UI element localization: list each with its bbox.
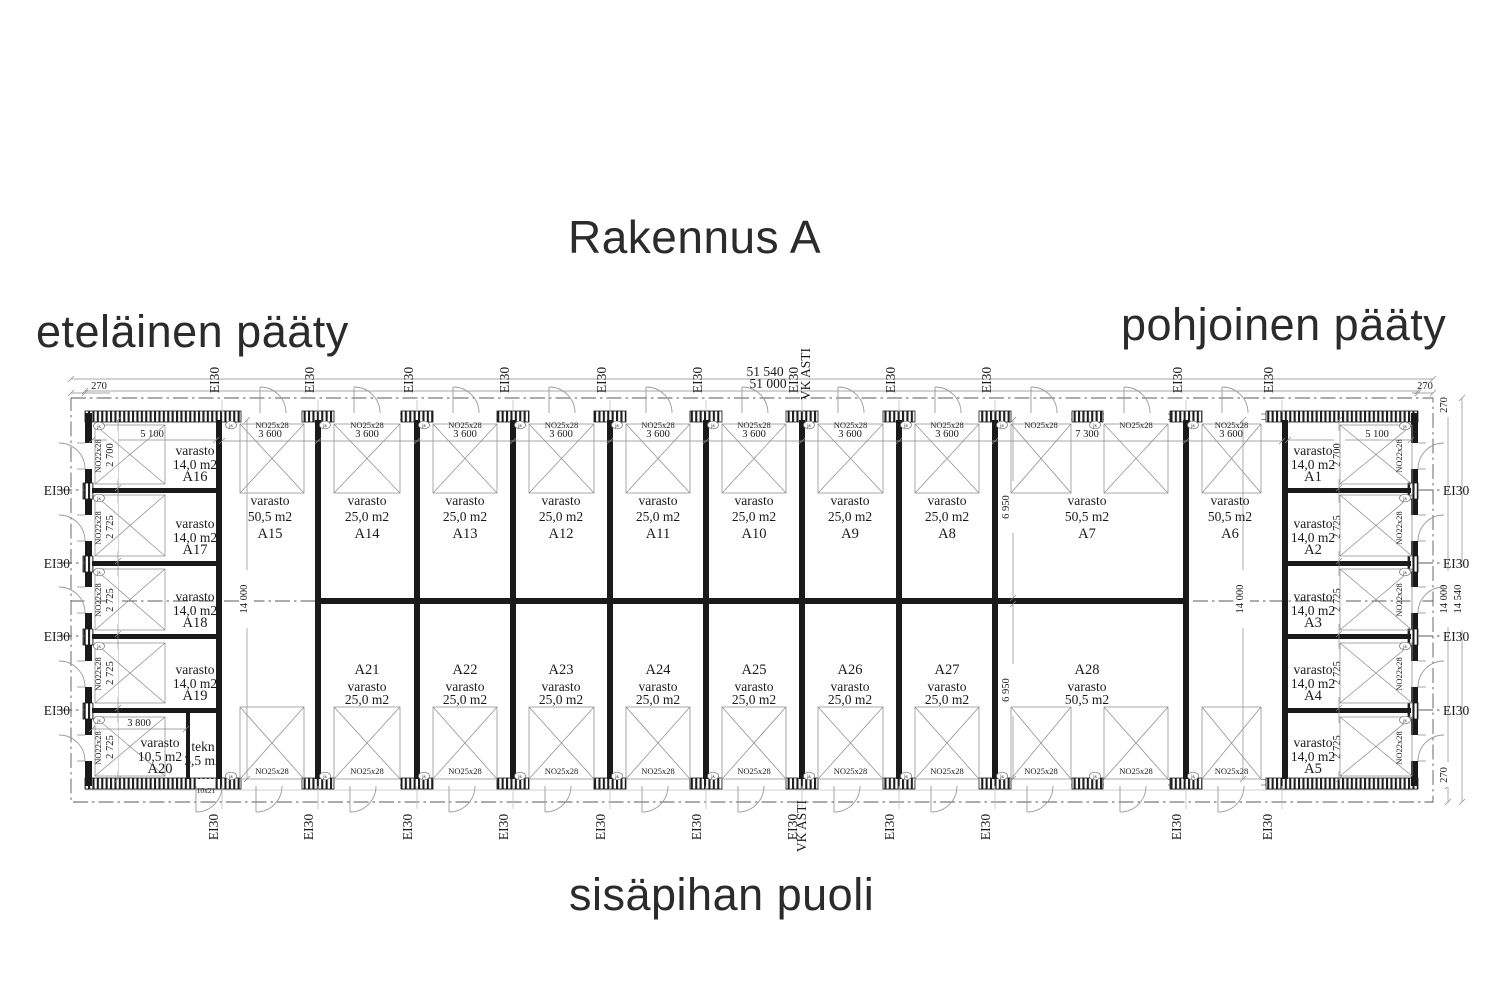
fire-rating-label: EI30 xyxy=(1443,556,1469,571)
unit-room-word: varasto xyxy=(251,493,290,508)
fire-rating-label: EI30 xyxy=(1443,483,1469,498)
fire-rating-label: EI30 xyxy=(207,367,222,393)
door-jamb-mark-label: js xyxy=(614,423,619,429)
door-type-label: 10x21 xyxy=(197,786,216,795)
door-jamb-mark-label: js xyxy=(96,718,101,724)
door-type-label: NO25x28 xyxy=(448,766,482,776)
door-jamb-mark-label: js xyxy=(1190,423,1195,429)
door-opening xyxy=(85,587,93,613)
door-opening xyxy=(722,779,786,788)
dim-label-depth: 2 700 xyxy=(105,443,116,467)
door-type-label: NO25x28 xyxy=(1215,420,1249,430)
unit-id: A7 xyxy=(1078,526,1096,542)
exterior-wall-hatched xyxy=(1282,778,1418,789)
unit-id: A24 xyxy=(646,662,672,678)
fire-rating-label: EI30 xyxy=(401,367,416,393)
fire-rating-label: EI30 xyxy=(302,367,317,393)
unit-id: A15 xyxy=(258,526,283,542)
unit-room-word: varasto xyxy=(1068,493,1107,508)
unit-id: A14 xyxy=(355,526,381,542)
vk-asti-label: VK ASTI xyxy=(798,347,813,400)
unit-area: 50,5 m2 xyxy=(248,509,292,524)
unit-room-word: varasto xyxy=(446,493,485,508)
dim-label-col-height: 14 000 xyxy=(1235,585,1246,614)
dim-label-a20-width: 3 800 xyxy=(127,718,151,729)
unit-id: A12 xyxy=(549,526,574,542)
door-type-label: NO25x28 xyxy=(641,766,675,776)
unit-room-word: varasto xyxy=(1294,443,1333,458)
unit-id: A13 xyxy=(453,526,478,542)
unit-room-word: varasto xyxy=(176,589,215,604)
dim-label-outer-height: 14 540 xyxy=(1453,585,1464,614)
door-opening xyxy=(433,779,497,788)
door-opening xyxy=(85,443,93,469)
door-jamb-mark-label: js xyxy=(710,423,715,429)
unit-area: 25,0 m2 xyxy=(345,509,389,524)
unit-id: A22 xyxy=(453,662,478,678)
door-opening xyxy=(529,779,594,788)
exterior-wall-hatched xyxy=(85,778,241,789)
door-type-label: NO22x28 xyxy=(1394,583,1404,617)
door-jamb-mark-label: js xyxy=(1402,570,1407,576)
door-jamb-mark-label: js xyxy=(806,423,811,429)
door-swing-arc xyxy=(59,587,85,613)
dim-label-offset: 270 xyxy=(91,381,107,392)
party-wall xyxy=(1288,634,1411,639)
door-type-label: NO25x28 xyxy=(1119,420,1153,430)
unit-id: A9 xyxy=(841,526,859,542)
door-type-label: NO25x28 xyxy=(255,420,289,430)
dim-label-offset: 270 xyxy=(1439,767,1450,783)
door-jamb-mark-label: js xyxy=(903,774,908,780)
party-wall xyxy=(1288,708,1411,713)
party-wall xyxy=(1288,561,1411,566)
unit-room-word: varasto xyxy=(831,493,870,508)
door-jamb-mark-label: js xyxy=(1402,496,1407,502)
door-type-label: NO22x28 xyxy=(93,657,103,691)
door-type-label: NO22x28 xyxy=(1394,731,1404,765)
door-type-label: NO25x28 xyxy=(834,766,868,776)
door-type-label: NO25x28 xyxy=(448,420,482,430)
door-swing-arc xyxy=(1418,443,1444,469)
unit-room-word: varasto xyxy=(542,493,581,508)
floor-plan-drawing: 51 54051 0002702703 6003 6003 6003 6003 … xyxy=(0,0,1500,1000)
dim-label-depth: 2 725 xyxy=(105,661,116,685)
unit-room-word: varasto xyxy=(176,516,215,531)
dim-label-depth: 2 725 xyxy=(105,515,116,539)
dim-label-bay: 3 600 xyxy=(646,429,670,440)
door-jamb-mark-label: js xyxy=(1092,774,1097,780)
unit-room-word: varasto xyxy=(1294,589,1333,604)
dim-label-left-width: 5 100 xyxy=(140,429,164,440)
fire-rating-label: EI30 xyxy=(44,703,70,718)
door-jamb-mark-label: js xyxy=(96,424,101,430)
door-jamb-mark-label: js xyxy=(96,570,101,576)
door-jamb-mark-label: js xyxy=(228,423,233,429)
unit-room-word: varasto xyxy=(1294,735,1333,750)
door-jamb-mark-label: js xyxy=(421,423,426,429)
door-jamb-mark-label: js xyxy=(1402,644,1407,650)
unit-area: 25,0 m2 xyxy=(443,692,487,707)
door-opening xyxy=(85,515,93,541)
unit-area: 50,5 m2 xyxy=(1065,509,1109,524)
dim-label-half-height: 6 950 xyxy=(1001,678,1012,702)
door-type-label: NO22x28 xyxy=(93,583,103,617)
door-type-label: NO22x28 xyxy=(93,511,103,545)
door-type-label: NO25x28 xyxy=(737,766,771,776)
unit-area: 3,5 m2 xyxy=(184,753,222,768)
dim-label-inner-width: 51 000 xyxy=(749,376,786,391)
fire-rating-label: EI30 xyxy=(594,367,609,393)
door-type-label: NO25x28 xyxy=(1119,766,1153,776)
door-type-label: NO25x28 xyxy=(545,766,579,776)
fire-rating-label: EI30 xyxy=(1261,367,1276,393)
door-jamb-mark-label: js xyxy=(999,423,1004,429)
door-jamb-mark-label: js xyxy=(96,496,101,502)
door-opening xyxy=(1202,779,1261,788)
exterior-wall-hatched xyxy=(1282,411,1418,422)
door-type-label: NO25x28 xyxy=(255,766,289,776)
fire-rating-label: EI30 xyxy=(690,367,705,393)
door-jamb-mark-label: js xyxy=(96,644,101,650)
door-type-label: NO25x28 xyxy=(350,766,384,776)
fire-rating-label: EI30 xyxy=(44,483,70,498)
unit-id: A26 xyxy=(838,662,863,678)
dim-label-depth: 2 725 xyxy=(105,735,116,759)
unit-id: A23 xyxy=(549,662,574,678)
floor-plan-page: Rakennus A eteläinen pääty pohjoinen pää… xyxy=(0,0,1500,1000)
door-type-label: NO22x28 xyxy=(93,439,103,473)
door-type-label: NO25x28 xyxy=(930,766,964,776)
unit-id: A3 xyxy=(1304,615,1322,631)
door-swing-arc xyxy=(1418,735,1444,761)
unit-id: A28 xyxy=(1075,662,1100,678)
fire-rating-label: EI30 xyxy=(400,814,415,840)
unit-id: A19 xyxy=(183,688,208,704)
storage-cross-box xyxy=(1104,424,1168,493)
door-opening xyxy=(1011,779,1071,788)
unit-area: 25,0 m2 xyxy=(636,509,680,524)
fire-rating-label: EI30 xyxy=(882,814,897,840)
dim-label-half-height: 6 950 xyxy=(1001,495,1012,519)
dim-label-double-bay: 7 300 xyxy=(1075,429,1099,440)
fire-rating-label: EI30 xyxy=(44,556,70,571)
door-jamb-mark-label: js xyxy=(322,774,327,780)
fire-rating-label: EI30 xyxy=(206,814,221,840)
dim-label-inner-height: 14 000 xyxy=(1439,585,1450,614)
unit-id: A20 xyxy=(148,761,173,777)
fire-rating-label: EI30 xyxy=(689,814,704,840)
door-pier-hatch xyxy=(1072,411,1103,422)
door-type-label: NO25x28 xyxy=(641,420,675,430)
unit-room-word: varasto xyxy=(141,735,180,750)
party-wall xyxy=(1282,420,1288,779)
party-wall xyxy=(92,634,216,639)
wall-hatch-segment xyxy=(1266,778,1282,789)
unit-id: A17 xyxy=(183,542,208,558)
fire-rating-label: EI30 xyxy=(1169,814,1184,840)
door-opening xyxy=(626,779,690,788)
dim-label-col-height: 14 000 xyxy=(239,585,250,614)
dim-label-offset: 270 xyxy=(1417,381,1433,392)
unit-id: A5 xyxy=(1304,761,1322,777)
unit-area: 25,0 m2 xyxy=(732,509,776,524)
dim-label-bay: 3 600 xyxy=(549,429,573,440)
door-jamb-mark-label: js xyxy=(903,423,908,429)
unit-area: 25,0 m2 xyxy=(636,692,680,707)
party-wall xyxy=(216,420,222,779)
door-swing-arc xyxy=(1418,515,1444,541)
unit-area: 50,5 m2 xyxy=(1065,692,1109,707)
fire-rating-label: EI30 xyxy=(1443,703,1469,718)
party-wall xyxy=(92,561,216,566)
door-jamb-mark-label: js xyxy=(710,774,715,780)
fire-rating-label: EI30 xyxy=(979,367,994,393)
dim-label-bay: 3 600 xyxy=(258,429,282,440)
dim-label-bay: 3 600 xyxy=(935,429,959,440)
door-type-label: NO25x28 xyxy=(834,420,868,430)
dim-label-depth: 2 725 xyxy=(105,588,116,612)
door-jamb-mark-label: js xyxy=(999,774,1004,780)
door-jamb-mark-label: js xyxy=(614,774,619,780)
dim-label-bay: 3 600 xyxy=(355,429,379,440)
door-pier-hatch xyxy=(1072,778,1103,789)
door-opening xyxy=(85,661,93,687)
unit-area: 25,0 m2 xyxy=(539,692,583,707)
fire-rating-label: EI30 xyxy=(44,629,70,644)
unit-room-word: varasto xyxy=(176,443,215,458)
unit-room-word: varasto xyxy=(1211,493,1250,508)
unit-room-word: varasto xyxy=(639,493,678,508)
door-jamb-mark-label: js xyxy=(517,423,522,429)
party-wall xyxy=(92,488,216,493)
unit-id: A10 xyxy=(742,526,767,542)
party-wall xyxy=(92,708,216,713)
fire-rating-label: EI30 xyxy=(301,814,316,840)
unit-room-word: varasto xyxy=(735,493,774,508)
dim-label-bay: 3 600 xyxy=(1219,429,1243,440)
unit-id: A27 xyxy=(935,662,960,678)
dim-label-offset: 270 xyxy=(1439,397,1450,413)
wall-hatch-segment xyxy=(83,629,93,645)
unit-area: 50,5 m2 xyxy=(1208,509,1252,524)
unit-area: 25,0 m2 xyxy=(828,509,872,524)
door-opening xyxy=(85,735,93,761)
door-type-label: NO25x28 xyxy=(1024,766,1058,776)
party-wall xyxy=(1288,488,1411,493)
unit-area: 25,0 m2 xyxy=(345,692,389,707)
fire-rating-label: EI30 xyxy=(883,367,898,393)
unit-room-word: varasto xyxy=(1294,662,1333,677)
storage-cross-box xyxy=(1011,424,1071,493)
door-opening xyxy=(1104,779,1168,788)
wall-hatch-segment xyxy=(83,703,93,719)
door-jamb-mark-label: js xyxy=(1190,774,1195,780)
wall-hatch-segment xyxy=(1266,411,1282,422)
door-type-label: NO22x28 xyxy=(1394,439,1404,473)
wall-hatch-segment xyxy=(83,483,93,499)
unit-room-word: varasto xyxy=(176,662,215,677)
door-jamb-mark-label: js xyxy=(1402,424,1407,430)
dim-label-bay: 3 600 xyxy=(742,429,766,440)
door-swing-arc xyxy=(59,443,85,469)
door-opening xyxy=(240,779,304,788)
unit-room-word: varasto xyxy=(1294,516,1333,531)
unit-id: A21 xyxy=(355,662,380,678)
door-swing-arc xyxy=(59,515,85,541)
unit-area: 25,0 m2 xyxy=(539,509,583,524)
vk-asti-label: VK ASTI xyxy=(794,799,809,852)
door-jamb-mark-label: js xyxy=(806,774,811,780)
door-type-label: NO25x28 xyxy=(545,420,579,430)
door-type-label: NO25x28 xyxy=(350,420,384,430)
door-jamb-mark-label: js xyxy=(1402,718,1407,724)
wall-hatch-segment xyxy=(83,556,93,572)
dim-label-left-width: 5 100 xyxy=(1365,429,1389,440)
door-jamb-mark-label: js xyxy=(1092,423,1097,429)
unit-room-word: varasto xyxy=(348,493,387,508)
unit-area: 25,0 m2 xyxy=(925,692,969,707)
fire-rating-label: EI30 xyxy=(496,814,511,840)
door-swing-arc xyxy=(59,661,85,687)
unit-id: A1 xyxy=(1304,469,1322,485)
door-type-label: NO25x28 xyxy=(737,420,771,430)
fire-rating-label: EI30 xyxy=(978,814,993,840)
fire-rating-label: EI30 xyxy=(1260,814,1275,840)
unit-id: A2 xyxy=(1304,542,1322,558)
unit-id: A18 xyxy=(183,615,208,631)
fire-rating-label: EI30 xyxy=(497,367,512,393)
unit-id: A25 xyxy=(742,662,767,678)
unit-id: A6 xyxy=(1221,526,1239,542)
door-jamb-mark-label: js xyxy=(322,423,327,429)
door-opening xyxy=(818,779,883,788)
unit-id: A11 xyxy=(646,526,670,542)
mid-wall xyxy=(318,598,1186,604)
door-jamb-mark-label: js xyxy=(517,774,522,780)
fire-rating-label: EI30 xyxy=(1443,629,1469,644)
unit-room-word: varasto xyxy=(928,493,967,508)
unit-area: 25,0 m2 xyxy=(443,509,487,524)
door-type-label: NO22x28 xyxy=(1394,657,1404,691)
unit-area: 25,0 m2 xyxy=(828,692,872,707)
door-jamb-mark-label: js xyxy=(421,774,426,780)
dim-label-bay: 3 600 xyxy=(838,429,862,440)
door-swing-arc xyxy=(1418,661,1444,687)
unit-area: 25,0 m2 xyxy=(925,509,969,524)
unit-id: A4 xyxy=(1304,688,1322,704)
door-jamb-mark-label: js xyxy=(228,774,233,780)
door-opening xyxy=(915,779,979,788)
fire-rating-label: EI30 xyxy=(593,814,608,840)
door-type-label: NO22x28 xyxy=(93,731,103,765)
door-type-label: NO25x28 xyxy=(1024,420,1058,430)
fire-rating-label: EI30 xyxy=(1170,367,1185,393)
dim-label-bay: 3 600 xyxy=(453,429,477,440)
door-opening xyxy=(334,779,400,788)
unit-id: tekn xyxy=(191,739,214,754)
door-type-label: NO25x28 xyxy=(1215,766,1249,776)
unit-area: 25,0 m2 xyxy=(732,692,776,707)
door-swing-arc xyxy=(59,735,85,761)
unit-id: A16 xyxy=(183,469,208,485)
door-type-label: NO22x28 xyxy=(1394,511,1404,545)
unit-id: A8 xyxy=(938,526,956,542)
door-type-label: NO25x28 xyxy=(930,420,964,430)
tekn-wall xyxy=(186,713,190,779)
